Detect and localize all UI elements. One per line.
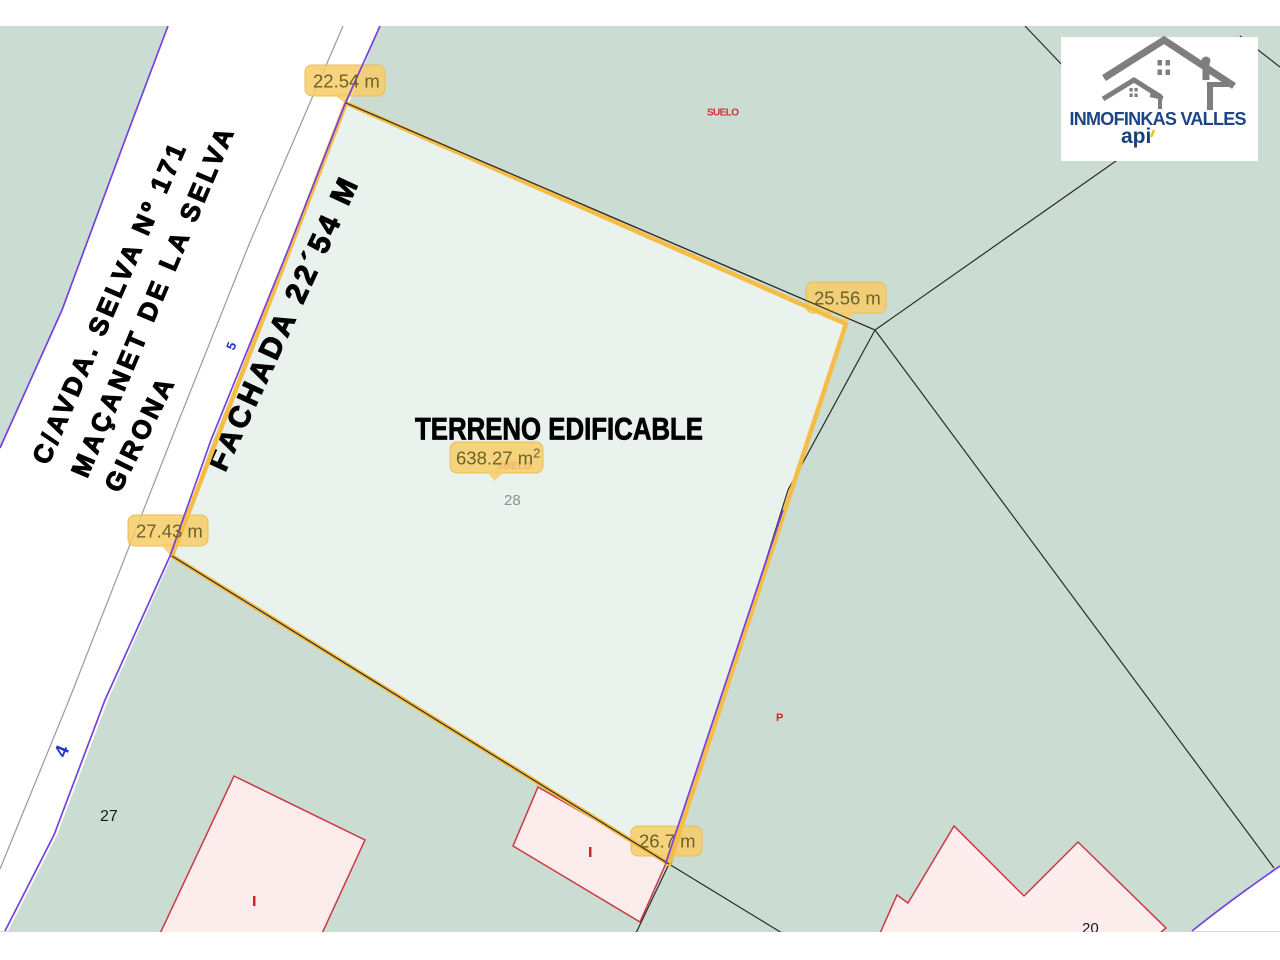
svg-text:27: 27 <box>100 808 118 825</box>
svg-text:api: api <box>1121 125 1151 148</box>
svg-text:22.54 m: 22.54 m <box>313 71 380 92</box>
svg-text:638.27 m2: 638.27 m2 <box>456 446 540 469</box>
svg-text:SUELO: SUELO <box>707 108 739 119</box>
svg-text:26.7 m: 26.7 m <box>639 831 696 852</box>
svg-text:INMOFINKAS VALLES: INMOFINKAS VALLES <box>1070 109 1247 129</box>
svg-text:P: P <box>776 712 783 724</box>
svg-text:28: 28 <box>504 492 521 509</box>
svg-text:27.43 m: 27.43 m <box>136 521 203 542</box>
svg-text:25.56 m: 25.56 m <box>814 288 881 309</box>
svg-text:TERRENO EDIFICABLE: TERRENO EDIFICABLE <box>415 411 703 447</box>
